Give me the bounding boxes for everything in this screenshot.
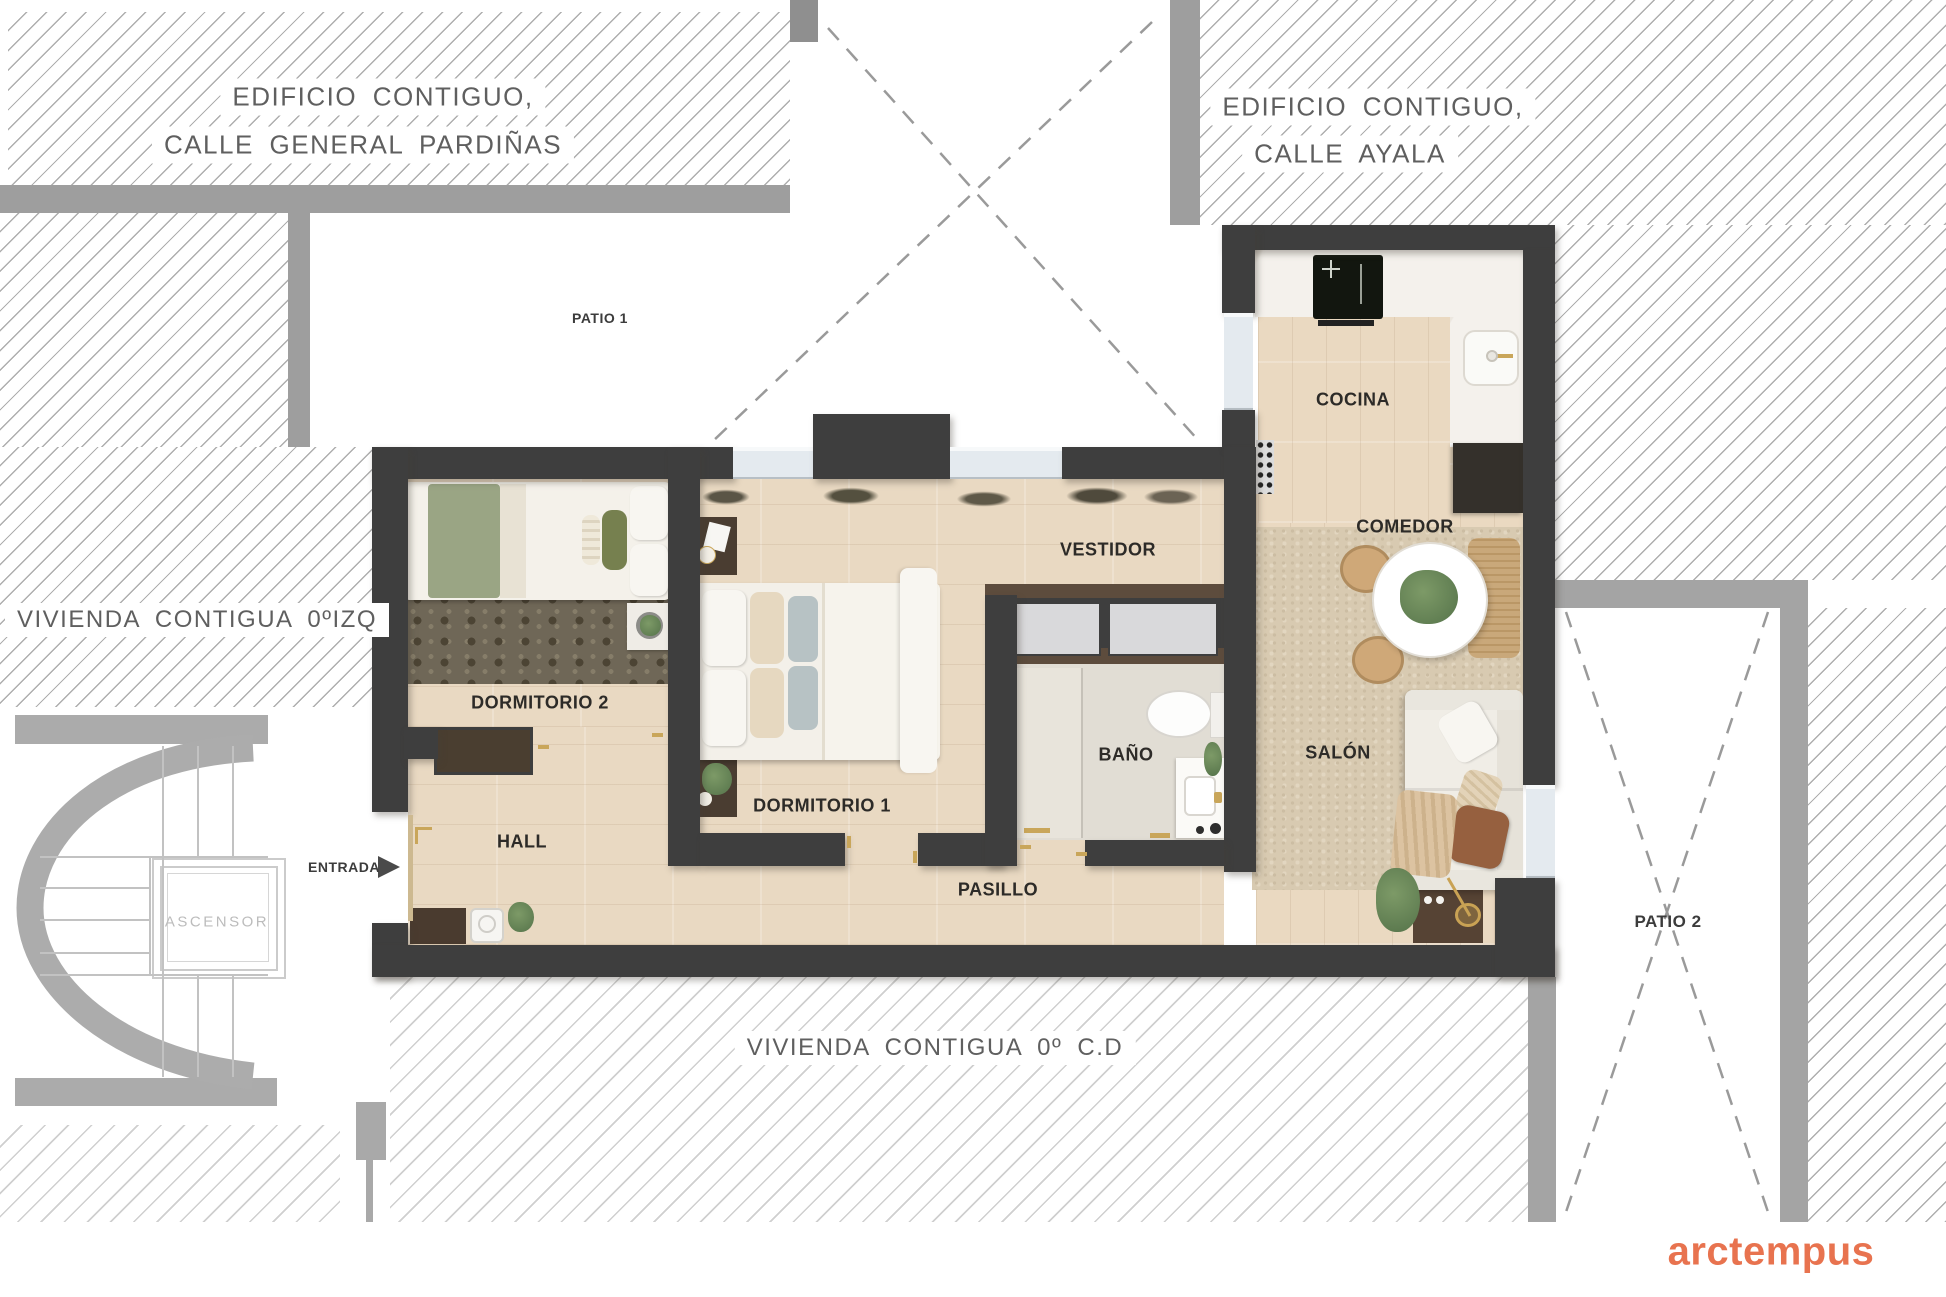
label-patio1: PATIO 1 [572,310,628,326]
floor-plan: EDIFICIO CONTIGUO, CALLE GENERAL PARDIÑA… [0,0,1946,1297]
label-comedor: COMEDOR [1356,517,1454,538]
label-vestidor: VESTIDOR [1060,540,1156,561]
overlay-lines [0,0,1946,1297]
label-vivienda-bottom: VIVIENDA CONTIGUA 0º C.D [735,1031,1136,1065]
label-vivienda-left: VIVIENDA CONTIGUA 0ºIZQ [5,603,389,637]
label-building-top-right-2: CALLE AYALA [1242,136,1458,173]
logo-arctempus: arctempus [1668,1230,1875,1275]
label-building-top-left-1: EDIFICIO CONTIGUO, [220,79,545,116]
label-bano: BAÑO [1099,745,1154,766]
label-dormitorio1: DORMITORIO 1 [753,796,891,817]
entrance-arrow-icon [378,856,400,878]
label-patio2: PATIO 2 [1634,912,1701,932]
label-dormitorio2: DORMITORIO 2 [471,693,609,714]
label-building-top-right-1: EDIFICIO CONTIGUO, [1210,89,1535,126]
label-ascensor: ASCENSOR [165,914,269,931]
label-hall: HALL [497,832,547,853]
label-entrada: ENTRADA [308,859,380,875]
label-building-top-left-2: CALLE GENERAL PARDIÑAS [152,127,574,164]
label-cocina: COCINA [1316,390,1390,411]
label-pasillo: PASILLO [958,880,1038,901]
label-salon: SALÓN [1305,743,1371,764]
